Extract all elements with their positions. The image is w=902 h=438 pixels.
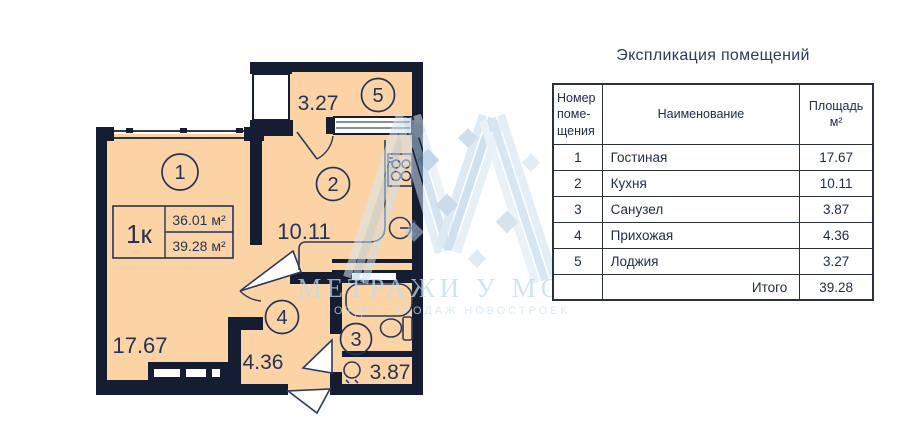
row-number: 4 bbox=[553, 222, 602, 248]
table-row: 1 Гостиная 17.67 bbox=[553, 144, 873, 170]
total-empty-cell bbox=[553, 274, 602, 300]
table-header-row: Номер поме-щения Наименование Площадь м² bbox=[553, 84, 873, 144]
wall-slot bbox=[212, 369, 220, 377]
room-5-number: 5 bbox=[372, 85, 383, 107]
table-total-row: Итого 39.28 bbox=[553, 274, 873, 300]
room-1-number: 1 bbox=[174, 162, 185, 184]
row-area: 10.11 bbox=[800, 170, 873, 196]
wall-room1-kitchen bbox=[250, 130, 262, 245]
col-header-area: Площадь м² bbox=[800, 84, 873, 144]
row-number: 2 bbox=[553, 170, 602, 196]
table-row: 2 Кухня 10.11 bbox=[553, 170, 873, 196]
wall-slot bbox=[154, 369, 180, 377]
logo-stripe bbox=[439, 115, 483, 247]
table-row: 5 Лоджия 3.27 bbox=[553, 248, 873, 274]
row-name: Лоджия bbox=[602, 248, 800, 274]
total-label: Итого bbox=[602, 274, 800, 300]
shaft-box bbox=[253, 74, 289, 120]
window-tick bbox=[180, 128, 187, 133]
wall-bottom-right bbox=[330, 384, 423, 395]
row-area: 4.36 bbox=[800, 222, 873, 248]
wall-top bbox=[255, 62, 423, 72]
wall-window-stub bbox=[326, 117, 334, 134]
room-3-area-label: 3.87 bbox=[370, 361, 411, 384]
window-tick bbox=[126, 128, 133, 133]
screenshot-root: 1 2 3 4 5 17.67 10.11 3.87 4.36 3.27 1к … bbox=[0, 0, 902, 438]
watermark-subtitle: ОТДЕЛ ПРОДАЖ НОВОСТРОЕК bbox=[334, 305, 570, 317]
apartment-type-label: 1к bbox=[126, 219, 152, 249]
row-area: 17.67 bbox=[800, 144, 873, 170]
col-header-number: Номер поме-щения bbox=[553, 84, 602, 144]
row-number: 1 bbox=[553, 144, 602, 170]
row-number: 3 bbox=[553, 196, 602, 222]
total-value: 39.28 bbox=[800, 274, 873, 300]
row-area: 3.27 bbox=[800, 248, 873, 274]
room-4-number: 4 bbox=[276, 307, 287, 329]
row-area: 3.87 bbox=[800, 196, 873, 222]
wall-bottom-left bbox=[96, 380, 230, 395]
apartment-area-living: 36.01 м² bbox=[172, 212, 226, 228]
logo-diamond bbox=[522, 154, 540, 172]
apartment-area-total: 39.28 м² bbox=[172, 238, 226, 254]
wall-hall-left bbox=[228, 317, 241, 395]
room-3-number: 3 bbox=[350, 329, 361, 351]
wall-corner-tl bbox=[96, 127, 114, 141]
wall-slot bbox=[186, 369, 206, 377]
explication-panel: Экспликация помещений Номер поме-щения Н… bbox=[552, 46, 874, 301]
row-name: Кухня bbox=[602, 170, 800, 196]
room-1-area-label: 17.67 bbox=[112, 333, 167, 358]
table-row: 3 Санузел 3.87 bbox=[553, 196, 873, 222]
room-4-area-label: 4.36 bbox=[243, 351, 284, 374]
wall-under-shaft bbox=[250, 120, 293, 136]
floor-plan: 1 2 3 4 5 17.67 10.11 3.87 4.36 3.27 1к … bbox=[96, 62, 423, 413]
window-tick bbox=[236, 128, 243, 133]
col-header-name: Наименование bbox=[602, 84, 800, 144]
wall-left bbox=[96, 130, 107, 395]
room-2-area-label: 10.11 bbox=[277, 219, 330, 244]
wall-bath-left-lower bbox=[330, 372, 342, 395]
entrance-door-leaf bbox=[288, 389, 330, 413]
row-number: 5 bbox=[553, 248, 602, 274]
room-2-number: 2 bbox=[327, 174, 338, 196]
explication-title: Экспликация помещений bbox=[552, 46, 874, 66]
row-name: Гостиная bbox=[602, 144, 800, 170]
row-name: Санузел bbox=[602, 196, 800, 222]
logo-stripe bbox=[492, 118, 545, 280]
row-name: Прихожая bbox=[602, 222, 800, 248]
table-row: 4 Прихожая 4.36 bbox=[553, 222, 873, 248]
explication-table: Номер поме-щения Наименование Площадь м²… bbox=[552, 83, 874, 301]
logo-diamond bbox=[468, 250, 486, 268]
room-5-area-label: 3.27 bbox=[298, 92, 339, 115]
